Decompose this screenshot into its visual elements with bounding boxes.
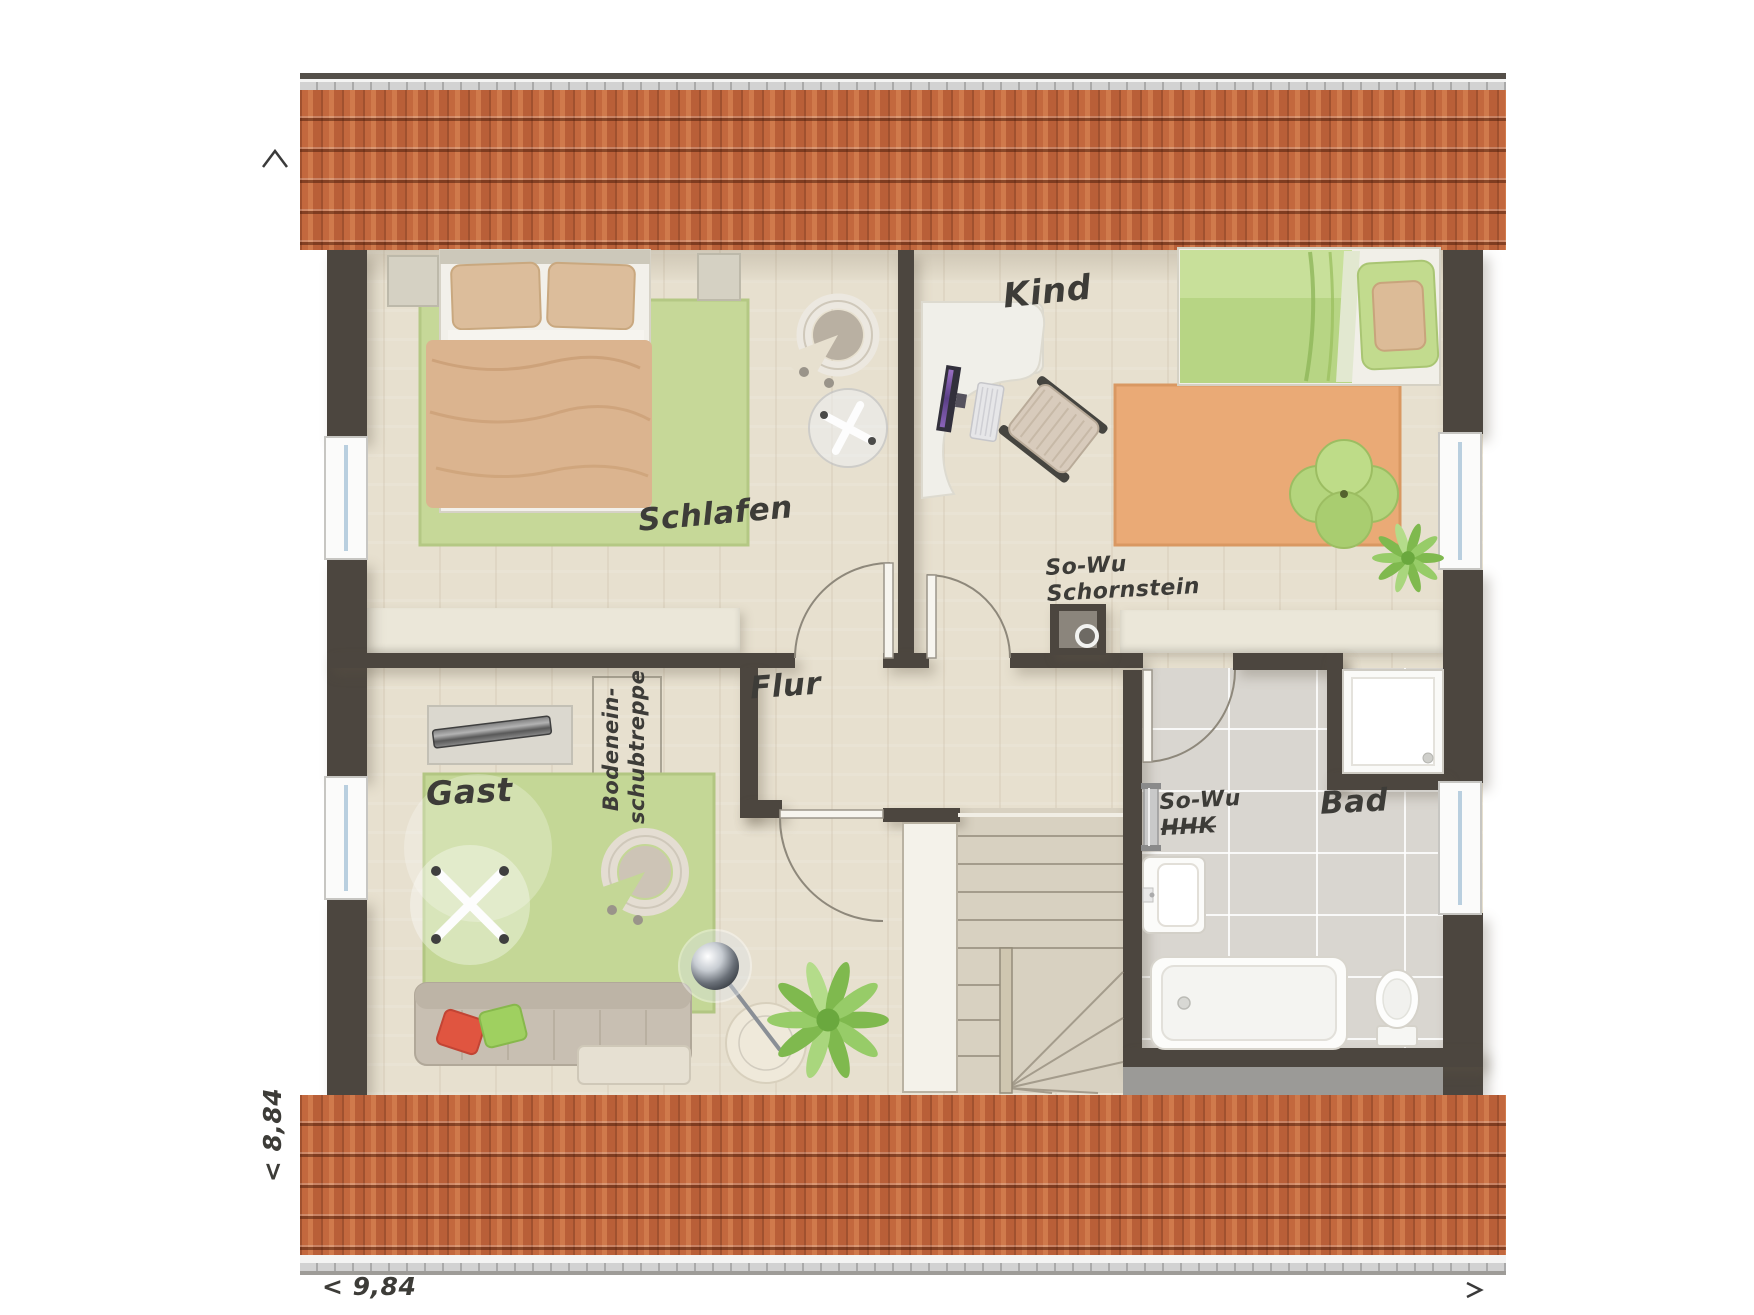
washbasin [1143,857,1205,933]
dimension-arrow-up [263,151,287,167]
annotation-towel-radiator-line2: HHK [1160,812,1243,842]
stair-railing [1000,948,1012,1093]
dimension-arrow-right [1467,1283,1481,1297]
room-label-flur: Flur [749,666,823,707]
side-table-glass-schlafen [809,389,887,467]
annotation-attic-stairs-line1: Bodenein- [598,674,624,824]
sofa [415,983,691,1084]
door-arc-bad [1143,670,1235,762]
desk [922,302,1044,498]
bathtub [1151,957,1347,1049]
annotation-towel-radiator: So-Wu HHK [1159,786,1243,842]
door-arc-kind [927,575,1010,658]
floor-plan: Schlafen Kind Flur Gast Bad So-Wu Schorn… [0,0,1754,1315]
door-leaf-bad [1143,670,1152,762]
roof-gutter-bottom [300,1263,1506,1271]
roof-tiles-bottom [300,1095,1506,1255]
schlafen-bed [426,250,652,512]
lounge-chair-schlafen [780,301,872,388]
nightstand-right [698,254,740,300]
bed-duvet [426,340,652,508]
roof-band-bottom [300,1095,1506,1275]
annotation-attic-stairs-line2: schubtreppe [624,674,650,824]
staircase [958,815,1123,1093]
toilet [1375,970,1419,1046]
annotation-towel-radiator-line1: So-Wu [1159,786,1242,816]
dimension-vertical: < 8,84 [258,1075,287,1195]
room-label-bad: Bad [1319,782,1389,822]
dimension-horizontal: < 9,84 [322,1272,416,1301]
door-leaf-kind [927,575,936,658]
annotation-attic-stairs: Bodenein- schubtreppe [598,674,650,824]
shower [1343,670,1443,773]
gast-sideboard [428,706,572,764]
door-arc-gast [780,818,883,921]
kind-pillow [1357,260,1438,370]
room-label-gast: Gast [425,770,514,813]
nightstand-left [388,256,438,306]
kind-bed [1178,248,1440,385]
coffee-table-cross [410,845,530,965]
door-leaf-gast [780,810,883,818]
door-arc-schlafen [795,563,890,658]
office-chair [997,375,1109,485]
door-leaf-schlafen [884,563,893,658]
annotation-chimney: So-Wu Schornstein [1045,548,1201,608]
